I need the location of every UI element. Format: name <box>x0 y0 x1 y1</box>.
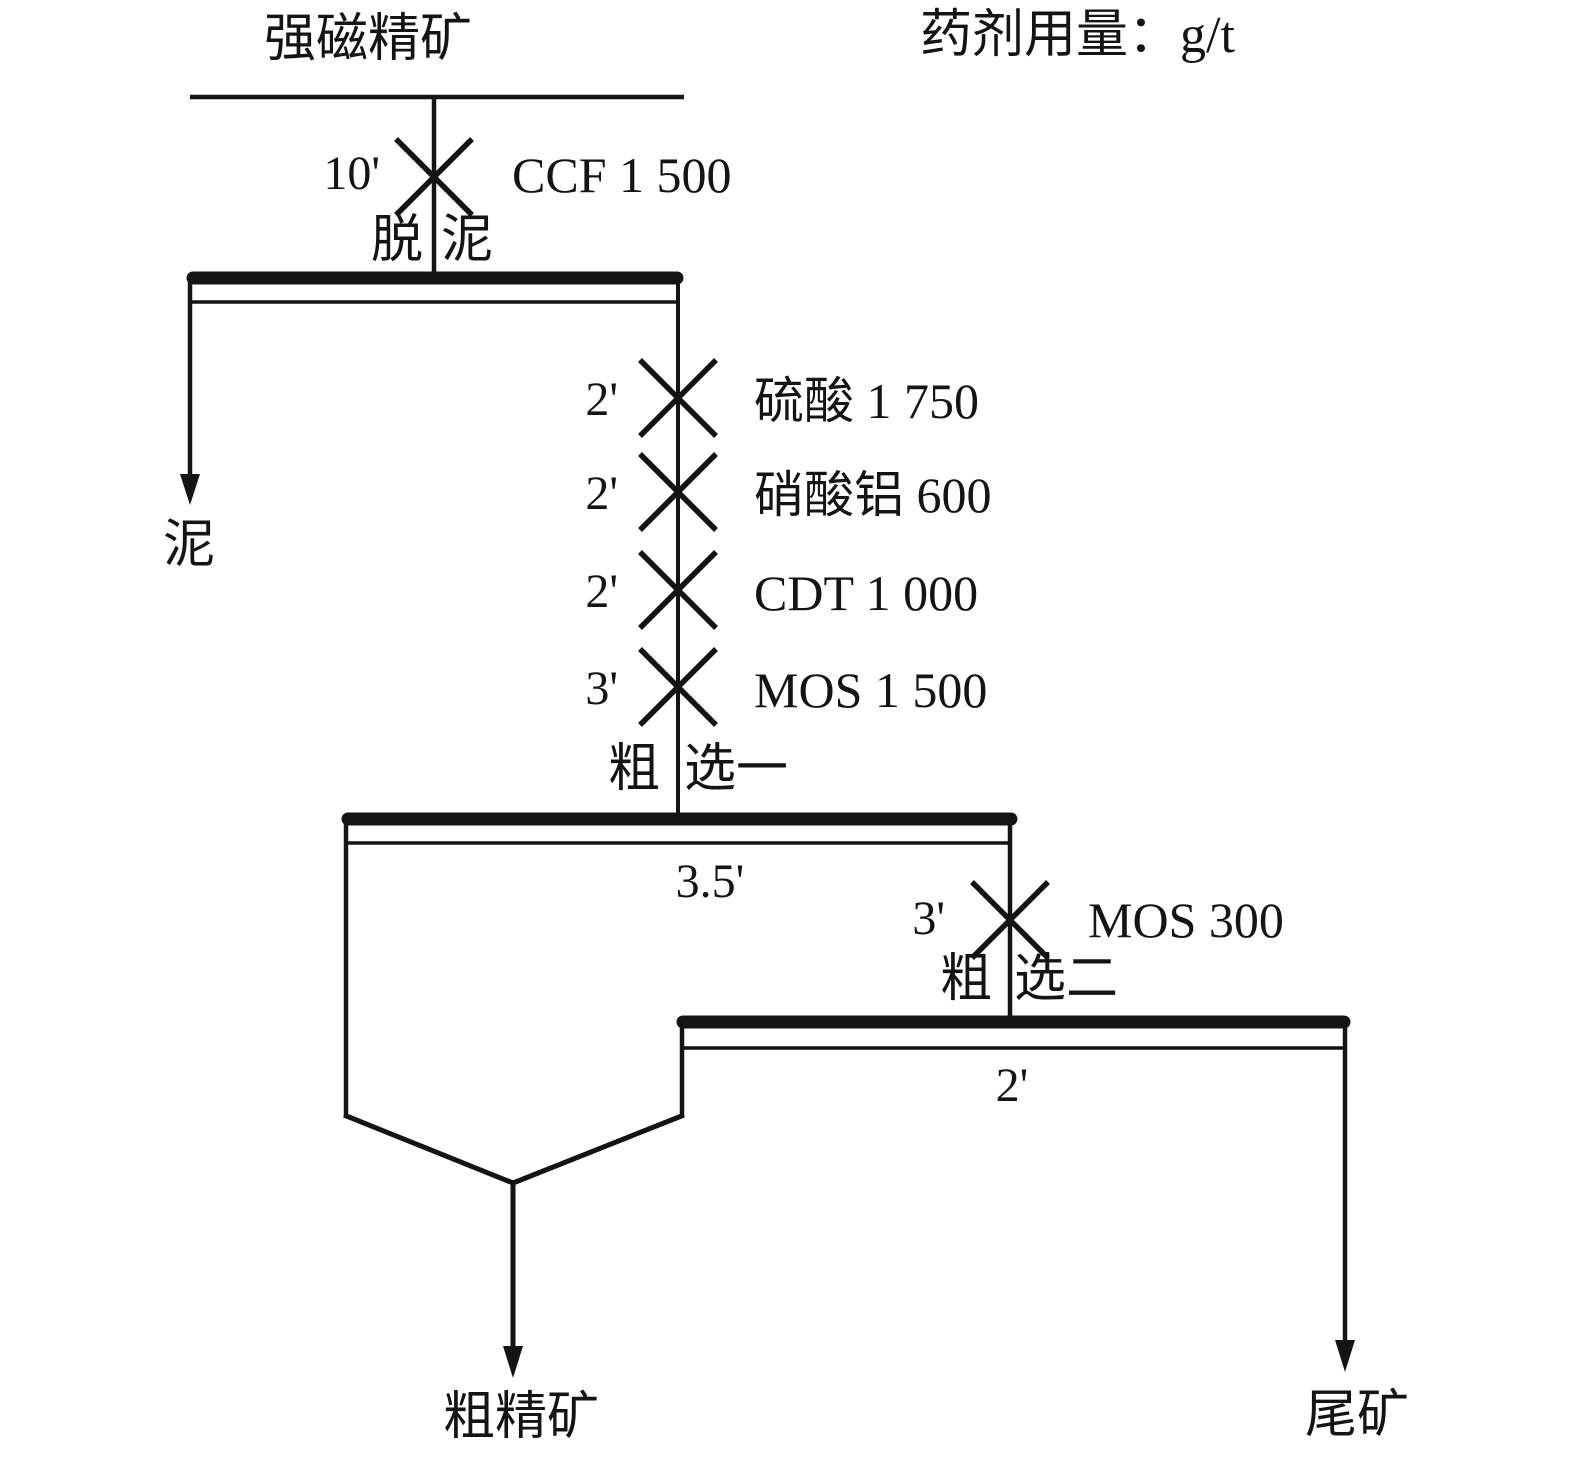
conditioning-time-1: 2' <box>518 376 618 424</box>
conditioning-reagent-3: CDT 1 000 <box>754 568 978 618</box>
conditioning-time-3: 2' <box>518 568 618 616</box>
feed-label: 强磁精矿 <box>264 14 472 66</box>
flotation-flowsheet-diagram: 强磁精矿 药剂用量：g/t 10' CCF 1 500 脱 泥 泥 2' 硫酸 … <box>0 0 1575 1459</box>
rougher2-flotation-time: 2' <box>996 1062 1029 1110</box>
concentrate-product-label: 粗精矿 <box>443 1392 599 1444</box>
hopper-left-slope <box>344 1115 513 1183</box>
rougher2-stage-label-right: 选二 <box>1014 954 1118 1006</box>
slime-product-label: 泥 <box>163 520 215 572</box>
conditioning-time-4: 3' <box>518 665 618 713</box>
dosage-note: 药剂用量：g/t <box>920 10 1235 62</box>
concentrate-arrowhead <box>503 1346 523 1378</box>
rougher1-stage-label-right: 选一 <box>684 744 788 796</box>
rougher2-reagent: MOS 300 <box>1088 895 1284 945</box>
rougher2-stage-label-left: 粗 <box>940 954 992 1006</box>
conditioning-time-2: 2' <box>518 470 618 518</box>
conditioning-reagent-2: 硝酸铝 600 <box>754 470 992 520</box>
rougher1-flotation-time: 3.5' <box>676 858 745 906</box>
deslime-stage-label-left: 脱 <box>371 215 423 267</box>
rougher2-cond-time: 3' <box>845 895 945 943</box>
deslime-cond-time: 10' <box>280 150 380 198</box>
slime-arrowhead <box>180 474 200 505</box>
flowsheet-lines <box>0 0 1575 1459</box>
conditioning-reagent-1: 硫酸 1 750 <box>754 376 979 426</box>
tailings-arrowhead <box>1335 1340 1355 1372</box>
conditioning-reagent-4: MOS 1 500 <box>754 665 987 715</box>
tailings-product-label: 尾矿 <box>1305 1390 1409 1442</box>
deslime-reagent: CCF 1 500 <box>512 150 732 200</box>
deslime-stage-label-right: 泥 <box>441 215 493 267</box>
hopper-right-slope <box>513 1115 684 1183</box>
rougher1-stage-label-left: 粗 <box>608 744 660 796</box>
